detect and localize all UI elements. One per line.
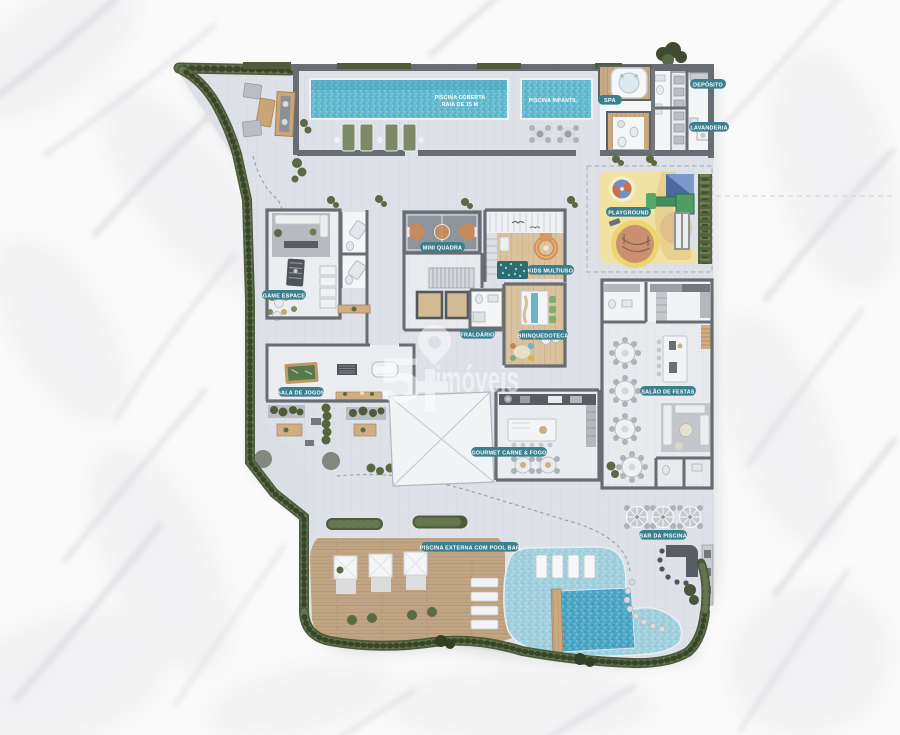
svg-text:PLAYGROUND: PLAYGROUND	[608, 211, 649, 217]
svg-text:LAVANDERIA: LAVANDERIA	[690, 126, 727, 132]
svg-text:SALÃO DE FESTAS: SALÃO DE FESTAS	[641, 389, 694, 396]
svg-text:MINI QUADRA: MINI QUADRA	[423, 246, 462, 252]
svg-text:PISCINA COBERTA: PISCINA COBERTA	[435, 95, 486, 101]
svg-text:GOURMET CARNE & FOGO: GOURMET CARNE & FOGO	[472, 451, 547, 457]
svg-text:SALA DE JOGOS: SALA DE JOGOS	[277, 391, 325, 397]
svg-text:PISCINA EXTERNA COM POOL BAR: PISCINA EXTERNA COM POOL BAR	[420, 546, 520, 552]
svg-text:DEPÓSITO: DEPÓSITO	[693, 81, 723, 89]
svg-text:imóveis: imóveis	[435, 359, 519, 400]
svg-text:FRALDÁRIO: FRALDÁRIO	[460, 332, 495, 339]
svg-text:BAR DA PISCINA: BAR DA PISCINA	[639, 534, 687, 540]
svg-text:SPA: SPA	[604, 98, 616, 104]
svg-text:BRINQUEDOTECA: BRINQUEDOTECA	[517, 334, 568, 340]
svg-text:PISCINA INFANTIL: PISCINA INFANTIL	[529, 98, 578, 104]
svg-text:KIDS MULTIUSO: KIDS MULTIUSO	[528, 269, 574, 275]
svg-text:RAIA DE 15 M: RAIA DE 15 M	[442, 102, 479, 108]
svg-text:GAME ESPACE: GAME ESPACE	[263, 294, 306, 300]
